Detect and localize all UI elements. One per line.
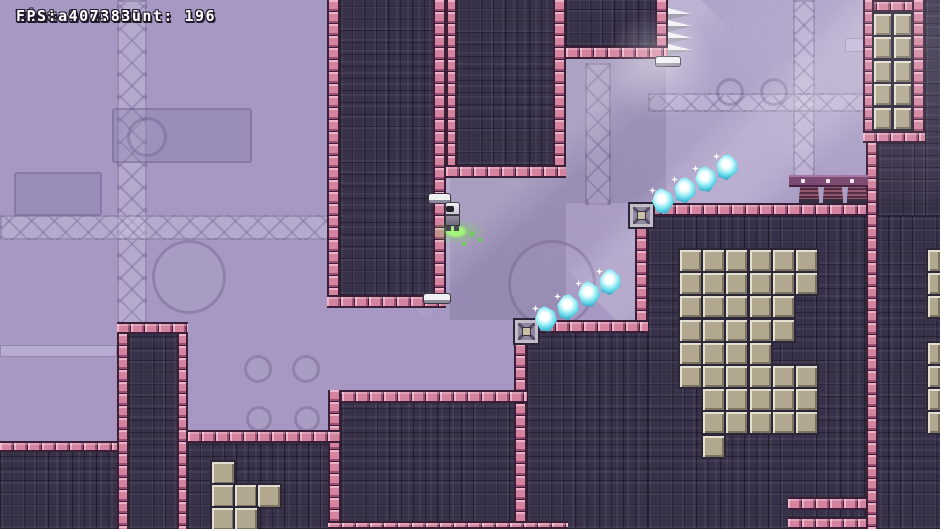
platform-fill-bottom-strip-left [0,452,117,529]
tan-tile [894,61,911,82]
tan-tile [874,108,891,129]
tan-tile [796,389,817,410]
pink-brick-border [788,517,866,529]
tan-tile [796,366,817,387]
tan-tile [703,343,724,364]
player-visor [446,206,454,212]
background-pipe-machinery [0,345,117,357]
tan-tile [726,250,747,271]
tan-tile [750,412,771,433]
tan-tile [796,273,817,294]
tan-tile [703,250,724,271]
tan-tile [750,366,771,387]
background-circle-machinery [127,117,167,157]
tan-tile [680,320,701,341]
tan-tile [928,343,940,364]
tan-tile [703,296,724,317]
pink-brick-border [866,143,878,529]
beam-rivet [801,179,805,183]
tan-tile [773,296,794,317]
tan-tile [750,389,771,410]
pink-brick-border [328,390,527,403]
tan-tile [703,436,724,457]
tan-tile [796,412,817,433]
background-circle-machinery [246,406,272,432]
tan-tile [235,485,257,507]
spring [847,186,867,203]
pink-brick-border [788,497,866,510]
tan-tile [773,250,794,271]
tan-tile [726,343,747,364]
tan-tile [212,508,234,529]
hud-fps: FPS: 407.83 [16,5,132,27]
tan-tile [703,412,724,433]
tan-tile [928,389,940,410]
player-leg [454,226,459,231]
spring-beam [789,175,868,187]
pink-brick-border [553,0,566,165]
tan-tile [680,343,701,364]
beam-rivet [826,179,830,183]
pink-brick-border [912,0,925,143]
tan-tile [773,389,794,410]
tan-tile [703,366,724,387]
tan-tile [750,343,771,364]
jet-particle [478,238,482,242]
tan-tile [750,273,771,294]
background-circle-machinery [152,240,226,314]
background-circle-machinery [292,355,320,383]
tan-tile [726,412,747,433]
background-circle-machinery [294,406,320,432]
player-leg [446,226,451,231]
metal-crate [630,204,653,227]
tan-tile [726,366,747,387]
tan-tile [773,366,794,387]
tan-tile [894,14,911,35]
tan-tile [680,296,701,317]
tan-tile [726,296,747,317]
tan-tile [928,250,940,271]
ledge-platform [424,294,450,303]
spring [823,186,843,203]
pink-brick-border [648,203,867,216]
pink-brick-border [863,0,874,143]
pink-brick-border [188,430,340,443]
pink-brick-border [433,0,446,295]
jet-particle [462,242,466,246]
tan-tile [928,273,940,294]
tan-tile [928,366,940,387]
player-character [443,202,463,232]
tan-tile [894,37,911,58]
tan-tile [773,412,794,433]
background-truss-machinery [0,215,335,240]
player-body [445,215,460,226]
tan-tile [703,389,724,410]
tan-tile [928,296,940,317]
tan-tile [874,37,891,58]
tan-tile [773,273,794,294]
tan-tile [703,273,724,294]
game-viewport[interactable]: Time 0:16.19 Best 0:13.72 Instance count… [0,0,940,529]
tan-tile [726,273,747,294]
tan-tile [894,84,911,105]
metal-crate [515,320,538,343]
tan-tile [235,508,257,529]
beam-rivet [850,179,854,183]
pink-brick-border [117,322,129,529]
tan-tile [874,61,891,82]
tan-tile [726,389,747,410]
pink-brick-border [0,441,117,452]
tan-tile [894,108,911,129]
tan-tile [726,320,747,341]
platform-fill-right-wall-top [925,0,940,216]
pink-brick-border [328,521,568,529]
tan-tile [680,366,701,387]
hud: Time 0:16.19 Best 0:13.72 Instance count… [16,5,416,105]
tan-tile [212,485,234,507]
tan-tile [874,14,891,35]
platform-fill-bottom-middle [341,403,514,529]
platform-fill-under-frame [878,143,925,216]
tan-tile [773,320,794,341]
pink-brick-border [117,322,188,334]
pink-brick-border [863,131,925,143]
background-circle-machinery [244,355,272,383]
platform-fill-column-d [129,334,177,529]
pink-brick-border [446,0,457,165]
jet-particle [470,232,474,236]
pink-brick-border [177,322,188,529]
tan-tile [680,273,701,294]
pink-brick-border [446,165,566,178]
tan-tile [928,412,940,433]
tan-tile [258,485,280,507]
tan-tile [750,250,771,271]
tan-tile [796,250,817,271]
pink-brick-border [328,390,341,529]
tan-tile [680,250,701,271]
tan-tile [750,296,771,317]
platform-fill-mid-step [527,333,648,529]
tan-tile [703,320,724,341]
tan-tile [212,462,234,484]
pink-brick-border [514,320,527,529]
platform-fill-column-b [457,0,553,165]
spring [799,186,819,203]
tan-tile [874,84,891,105]
light-glow [600,10,720,120]
tan-tile [750,320,771,341]
background-panel-machinery [14,172,102,216]
